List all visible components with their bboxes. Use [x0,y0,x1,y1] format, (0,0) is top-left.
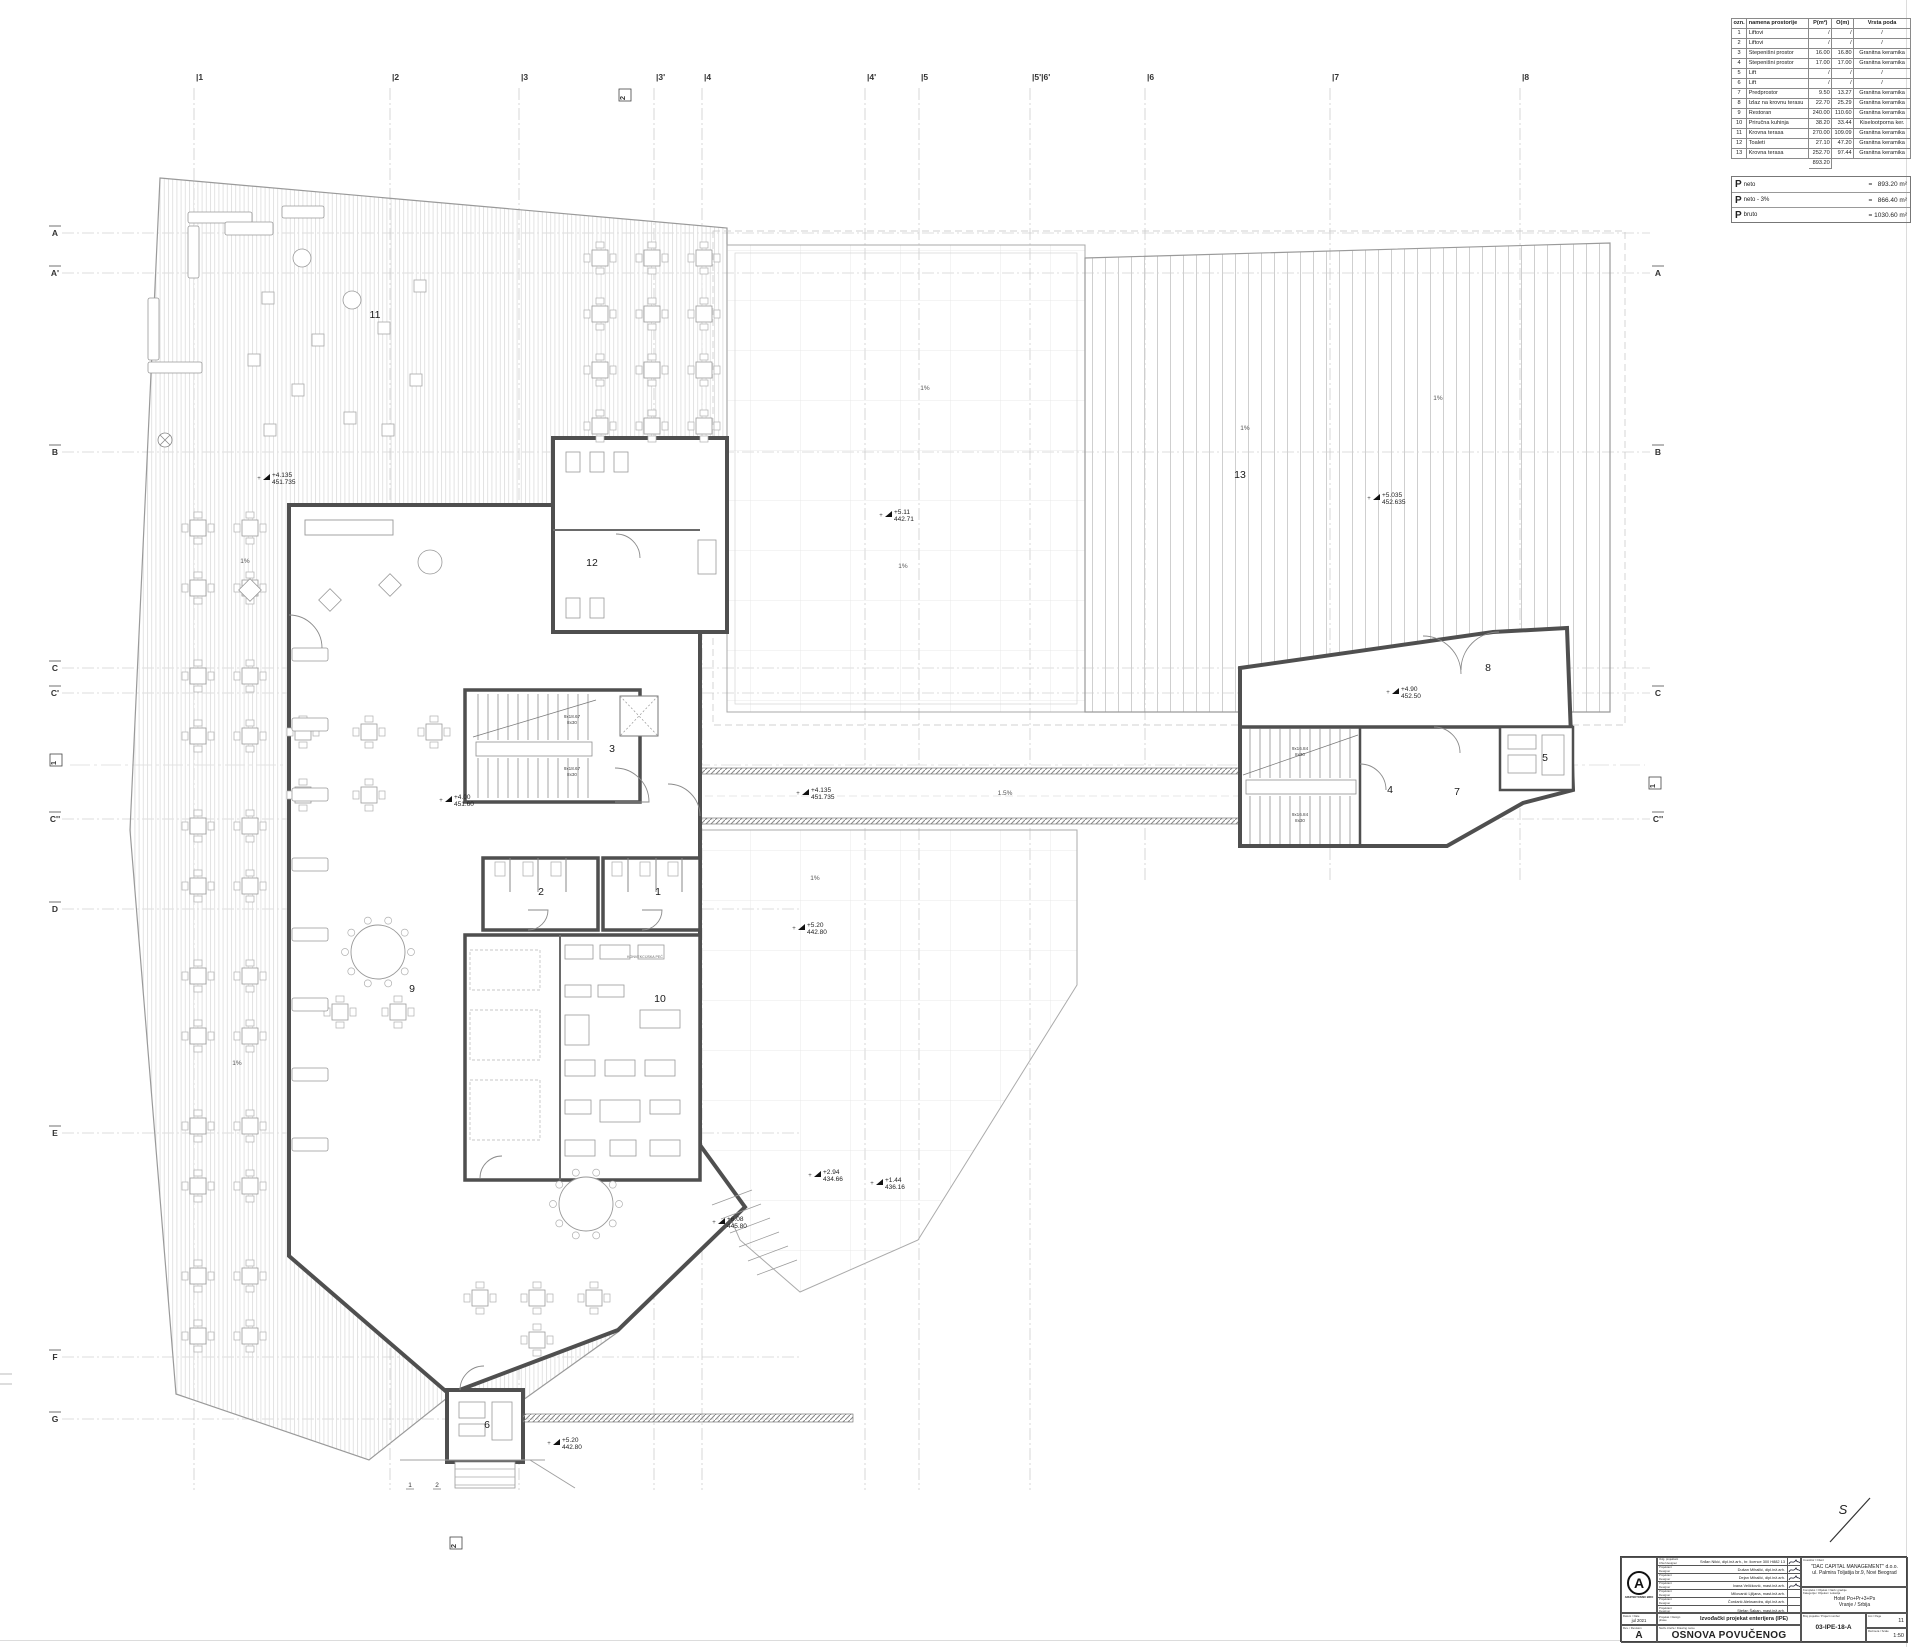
legend-cell: / [1832,78,1854,88]
legend-cell: Izlaz na krovnu terasu [1747,98,1809,108]
signature [1787,1566,1800,1573]
x-axis-label: |7 [1332,72,1339,82]
signature [1787,1558,1800,1565]
svg-text:452.50: 452.50 [1401,693,1421,700]
roof-drain [158,433,172,447]
legend-cell: / [1854,78,1911,88]
legend-cell: 17.00 [1809,58,1832,68]
coffee-table [293,249,311,267]
svg-text:+: + [547,1441,551,1447]
legend-empty [1732,158,1747,168]
x-axis-label: |6 [1147,72,1154,82]
lounge-chair [382,424,394,436]
y-axis-label: A [1655,268,1661,278]
legend-cell: Stepenišni prostor [1747,58,1809,68]
phase-cell: Projekat / Design phase Izvođački projek… [1657,1613,1801,1625]
x-axis-label: |8 [1522,72,1529,82]
room-number: 7 [1454,786,1460,798]
area-summary-row: Pneto= 893.20 m² [1732,177,1910,192]
slope-label: 1% [240,558,250,565]
lounge-sofa [188,212,252,223]
drawing-number-cell: Broj projekta / Project number 03-IPE-18… [1801,1613,1866,1643]
legend-row: 7Predprostor9.5013.27Granitna keramika [1732,88,1911,98]
legend-cell: Liftovi [1747,28,1809,38]
lounge-chair [344,412,356,424]
svg-text:452.635: 452.635 [1382,499,1406,506]
legend-cell: / [1809,78,1832,88]
x-axis-label: |2 [392,72,399,82]
legend-cell: 4 [1732,58,1747,68]
svg-text:+: + [796,791,800,797]
svg-text:+: + [257,476,261,482]
legend-row: 8Izlaz na krovnu terasu22.7025.29Granitn… [1732,98,1911,108]
legend-cell: / [1809,28,1832,38]
client-label: Investitor / Client [1803,1559,1906,1562]
legend-cell: 38.20 [1809,118,1832,128]
room-number: 6 [484,1419,490,1431]
legend-cell: / [1832,38,1854,48]
signature [1787,1606,1800,1613]
svg-text:+: + [792,926,796,932]
legend-cell: 7 [1732,88,1747,98]
svg-text:451.735: 451.735 [272,479,296,486]
bar-counter [305,520,393,535]
y-axis-label: C [52,663,58,673]
legend-cell: 47.20 [1832,138,1854,148]
svg-text:+: + [879,513,883,519]
signature [1787,1582,1800,1589]
legend-row: 5Lift/// [1732,68,1911,78]
phase-value: Izvođački projekat enterijera (IPE) [1688,1616,1800,1622]
legend-cell: 13 [1732,148,1747,158]
legend-header: Vrsta poda [1854,19,1911,29]
y-axis-label: E [52,1128,58,1138]
legend-cell: / [1854,28,1911,38]
legend-row: 9Restoran240.00110.60Granitna keramika [1732,108,1911,118]
legend-header: P(m²) [1809,19,1832,29]
legend-cell: 270.00 [1809,128,1832,138]
svg-text:+: + [870,1181,874,1187]
slope-label: 1% [1433,395,1443,402]
room-number: 5 [1542,752,1548,764]
section-mark: 2 [618,96,627,100]
legend-row: 10Priručna kuhinja38.2033.44Kiselootporn… [1732,118,1911,128]
booth-seat [292,648,328,661]
x-axis-label: |5'|6' [1032,72,1050,82]
booth-seat [292,928,328,941]
legend-cell: / [1832,68,1854,78]
legend-table: ozn.namena prostorijeP(m²)O(m)Vrsta poda… [1731,18,1911,169]
svg-text:+: + [1367,496,1371,502]
signature [1787,1590,1800,1597]
object-label-2: Kategorija / Objekat / Lokacija [1803,1592,1906,1595]
legend-cell: Restoran [1747,108,1809,118]
slope-label: 1% [898,563,908,570]
legend-total-row: 893.20 [1732,158,1911,168]
svg-text:451.60: 451.60 [454,801,474,808]
lounge-chair [262,292,274,304]
legend-row: 2Liftovi/// [1732,38,1911,48]
stair-label: 9x16.84 [1292,746,1309,751]
legend-cell: 16.00 [1809,48,1832,58]
legend-header: O(m) [1832,19,1854,29]
svg-text:451.735: 451.735 [811,794,835,801]
legend-cell: 2 [1732,38,1747,48]
designer-row: ProjektantDesignerČordarić Aleksandra, d… [1658,1598,1800,1606]
y-axis-label: G [52,1414,59,1424]
legend-cell: 9 [1732,108,1747,118]
svg-text:+: + [439,798,443,804]
room-legend-table: ozn.namena prostorijeP(m²)O(m)Vrsta poda… [1731,18,1911,169]
legend-cell: / [1809,38,1832,48]
lounge-sofa [188,226,199,278]
legend-row: 6Lift/// [1732,78,1911,88]
y-axis-label: C'' [50,814,60,824]
legend-cell: Lift [1747,78,1809,88]
x-axis-label: |5 [921,72,928,82]
legend-cell: Kiselootporna ker. [1854,118,1911,128]
object-cell: Kompleks / Objekat / Naziv gradnje Kateg… [1801,1587,1908,1613]
lounge-sofa [225,222,273,235]
legend-cell: 3 [1732,48,1747,58]
legend-cell: 27.10 [1809,138,1832,148]
legend-cell: Predprostor [1747,88,1809,98]
svg-text:445.80: 445.80 [727,1223,747,1230]
legend-cell: Granitna keramika [1854,48,1911,58]
svg-text:+4.00: +4.00 [454,794,471,801]
svg-text:+: + [1386,690,1390,696]
room-number: 3 [609,743,615,755]
svg-text:+5.035: +5.035 [1382,492,1402,499]
legend-cell: 12 [1732,138,1747,148]
svg-text:+4.90: +4.90 [1401,686,1418,693]
slope-label: 1.5% [998,790,1013,797]
legend-cell: Stepenišni prostor [1747,48,1809,58]
stair-label: 9x16.84 [1292,812,1309,817]
floor-plan-canvas: |1|2|3|3'|4|4'|5|5'|6'|6|7|8AA'BCC'C''DE… [0,0,1920,1647]
svg-text:442.80: 442.80 [807,929,827,936]
lounge-chair [312,334,324,346]
page-cell: List / Page 11 [1866,1613,1908,1628]
logo-cell: A ARHITEKTONSKI BIRO [1621,1557,1657,1613]
section-mark: 2 [449,1544,458,1548]
stair-label: 8x30 [567,772,577,777]
lounge-chair [264,424,276,436]
legend-cell: 5 [1732,68,1747,78]
legend-row: 11Krovna terasa270.00109.09Granitna kera… [1732,128,1911,138]
legend-cell: / [1809,68,1832,78]
area-summary: Pneto= 893.20 m²Pneto - 3%= 866.40 m²Pbr… [1731,176,1911,223]
date-cell: Datum / Date jul 2021 [1621,1613,1657,1625]
north-indicator: S [1830,1498,1870,1542]
legend-cell: 110.60 [1832,108,1854,118]
lounge-chair [414,280,426,292]
x-axis-label: |4 [704,72,711,82]
legend-cell: / [1854,68,1911,78]
slope-label: 1% [920,385,930,392]
legend-cell: Granitna keramika [1854,98,1911,108]
designer-row: ProjektantDesignerIvana Veličković, mast… [1658,1582,1800,1590]
stair-label: 8x30 [1295,818,1305,823]
room-number: 13 [1234,469,1246,481]
booth-seat [292,1138,328,1151]
legend-cell: 8 [1732,98,1747,108]
legend-cell: 11 [1732,128,1747,138]
room-number: 11 [370,309,381,321]
svg-text:+5.20: +5.20 [562,1437,579,1444]
y-axis-label: A [52,228,58,238]
axis-sub-label: 1 [408,1482,412,1489]
legend-header: ozn. [1732,19,1747,29]
legend-cell: Priručna kuhinja [1747,118,1809,128]
legend-cell: 22.70 [1809,98,1832,108]
legend-header: namena prostorije [1747,19,1809,29]
x-axis-label: |3 [521,72,528,82]
legend-cell: 13.27 [1832,88,1854,98]
room-number: 1 [655,886,661,898]
y-axis-label: B [52,447,58,457]
svg-text:436.16: 436.16 [885,1184,905,1191]
svg-text:+5.20: +5.20 [807,922,824,929]
legend-cell: Granitna keramika [1854,148,1911,158]
designer-row: ProjektantDesignerDejan Mihailić, dipl.i… [1658,1574,1800,1582]
y-axis-label: C'' [1653,814,1663,824]
room-number: 4 [1387,784,1393,796]
drawing-sheet: |1|2|3|3'|4|4'|5|5'|6'|6|7|8AA'BCC'C''DE… [0,0,1920,1647]
elevation-marker: ++5.20442.80 [547,1437,582,1451]
section-mark: 1 [49,761,58,765]
booth-seat [292,998,328,1011]
stair-label: 9x18.67 [564,714,581,719]
booth-seat [292,788,328,801]
y-axis-label: B [1655,447,1661,457]
legend-row: 1Liftovi/// [1732,28,1911,38]
lounge-chair [248,354,260,366]
room-number: 10 [654,993,666,1005]
legend-cell: Krovna terasa [1747,148,1809,158]
lounge-sofa [148,298,159,360]
legend-cell: 16.80 [1832,48,1854,58]
legend-cell: / [1832,28,1854,38]
legend-row: 3Stepenišni prostor16.0016.80Granitna ke… [1732,48,1911,58]
drawing-name-cell: Naziv crteža / Drawing name OSNOVA POVUČ… [1657,1625,1801,1643]
legend-row: 13Krovna terasa252.7097.44Granitna keram… [1732,148,1911,158]
designer-row: Odg. projektantChief designerSrđan Nikić… [1658,1558,1800,1566]
drawing-number-label: Broj projekta / Project number [1803,1615,1864,1618]
drawing-title: OSNOVA POVUČENOG SPRATA [1659,1630,1799,1643]
page-number: 11 [1868,1618,1906,1624]
legend-total: 893.20 [1809,158,1832,168]
phase-label: Projekat / Design phase [1658,1616,1688,1622]
legend-cell: Toaleti [1747,138,1809,148]
room-number: 8 [1485,662,1491,674]
svg-text:434.66: 434.66 [823,1176,843,1183]
slope-label: 1% [1240,425,1250,432]
lounge-chair [410,374,422,386]
area-summary-row: Pbruto= 1030.60 m² [1732,207,1910,222]
y-axis-label: C' [51,688,59,698]
legend-cell: 1 [1732,28,1747,38]
north-label: S [1839,1502,1848,1517]
legend-empty [1747,158,1809,168]
legend-cell: Granitna keramika [1854,58,1911,68]
object-location: Vranje / Srbija [1803,1602,1906,1609]
legend-cell: 10 [1732,118,1747,128]
y-axis-label: A' [51,268,59,278]
signature [1787,1574,1800,1581]
coffee-table [343,291,361,309]
revision-cell: Rev. / Revision A [1621,1625,1657,1643]
section-mark: 1 [1648,784,1657,788]
lounge-sofa [282,206,324,218]
legend-cell: 6 [1732,78,1747,88]
legend-row: 12Toaleti27.1047.20Granitna keramika [1732,138,1911,148]
slope-label: 1% [810,875,820,882]
stair-label: 8x30 [1295,752,1305,757]
lounge-sofa [148,362,202,373]
legend-cell: Granitna keramika [1854,138,1911,148]
y-axis-label: D [52,904,58,914]
legend-cell: Krovna terasa [1747,128,1809,138]
legend-cell: 97.44 [1832,148,1854,158]
client-cell: Investitor / Client "DAC CAPITAL MANAGEM… [1801,1557,1908,1587]
signature [1787,1598,1800,1605]
legend-cell: 109.09 [1832,128,1854,138]
y-axis-label: C [1655,688,1661,698]
legend-cell: 17.00 [1832,58,1854,68]
legend-cell: Granitna keramika [1854,128,1911,138]
legend-cell: 9.50 [1809,88,1832,98]
title-block: A ARHITEKTONSKI BIRO Datum / Date jul 20… [1620,1556,1907,1642]
slope-label: 1% [232,1060,242,1067]
equipment-label: KONVEKCIJSKA PEĆ [627,954,663,959]
x-axis-label: |4' [867,72,876,82]
drawing-number: 03-IPE-18-A [1803,1624,1864,1631]
company-logo: A [1627,1571,1651,1595]
svg-text:+6.08: +6.08 [727,1216,744,1223]
legend-cell: 252.70 [1809,148,1832,158]
room-number: 12 [586,557,598,569]
booth-seat [292,1068,328,1081]
middle-roof [727,245,1085,712]
legend-empty [1832,158,1854,168]
booth-seat [292,718,328,731]
legend-row: 4Stepenišni prostor17.0017.00Granitna ke… [1732,58,1911,68]
y-axis-label: F [52,1352,57,1362]
svg-text:+1.44: +1.44 [885,1177,902,1184]
stair-label: 9x18.67 [564,766,581,771]
area-summary-row: Pneto - 3%= 866.40 m² [1732,192,1910,207]
legend-cell: Liftovi [1747,38,1809,48]
svg-text:442.80: 442.80 [562,1444,582,1451]
lounge-chair [292,384,304,396]
x-axis-label: |3' [656,72,665,82]
designer-row: ProjektantDesignerDušan Mihailić, dipl.i… [1658,1566,1800,1574]
stair-label: 8x30 [567,720,577,725]
designer-row: ProjektantDesignerStefan Šakan, mast.inž… [1658,1606,1800,1613]
legend-cell: 33.44 [1832,118,1854,128]
logo-caption: ARHITEKTONSKI BIRO [1625,1596,1653,1599]
scale-value: 1:50 [1868,1633,1906,1639]
booth-seat [292,858,328,871]
room-number: 9 [409,983,415,995]
legend-empty [1854,158,1911,168]
room-number: 2 [538,886,544,898]
svg-text:+4.135: +4.135 [272,472,292,479]
svg-text:+4.135: +4.135 [811,787,831,794]
revision-value: A [1623,1630,1655,1641]
svg-text:+: + [712,1220,716,1226]
legend-cell: 240.00 [1809,108,1832,118]
designer-row: ProjektantDesignerMilovanić Ljiljana, ma… [1658,1590,1800,1598]
svg-text:+2.94: +2.94 [823,1169,840,1176]
svg-text:+5.11: +5.11 [894,509,910,516]
svg-text:+: + [808,1173,812,1179]
scale-cell: Razmera / Scale 1:50 [1866,1628,1908,1643]
designers-list: Odg. projektantChief designerSrđan Nikić… [1657,1557,1801,1613]
date-value: jul 2021 [1623,1618,1655,1623]
client-address: ul. Palmira Toljatija br.9, Novi Beograd [1803,1570,1906,1577]
legend-cell: Lift [1747,68,1809,78]
legend-cell: Granitna keramika [1854,88,1911,98]
lounge-chair [378,322,390,334]
logo-letter: A [1634,1575,1644,1591]
axis-sub-label: 2 [435,1482,439,1489]
legend-cell: / [1854,38,1911,48]
svg-text:442.71: 442.71 [894,516,914,523]
x-axis-label: |1 [196,72,203,82]
legend-cell: Granitna keramika [1854,108,1911,118]
legend-cell: 25.29 [1832,98,1854,108]
